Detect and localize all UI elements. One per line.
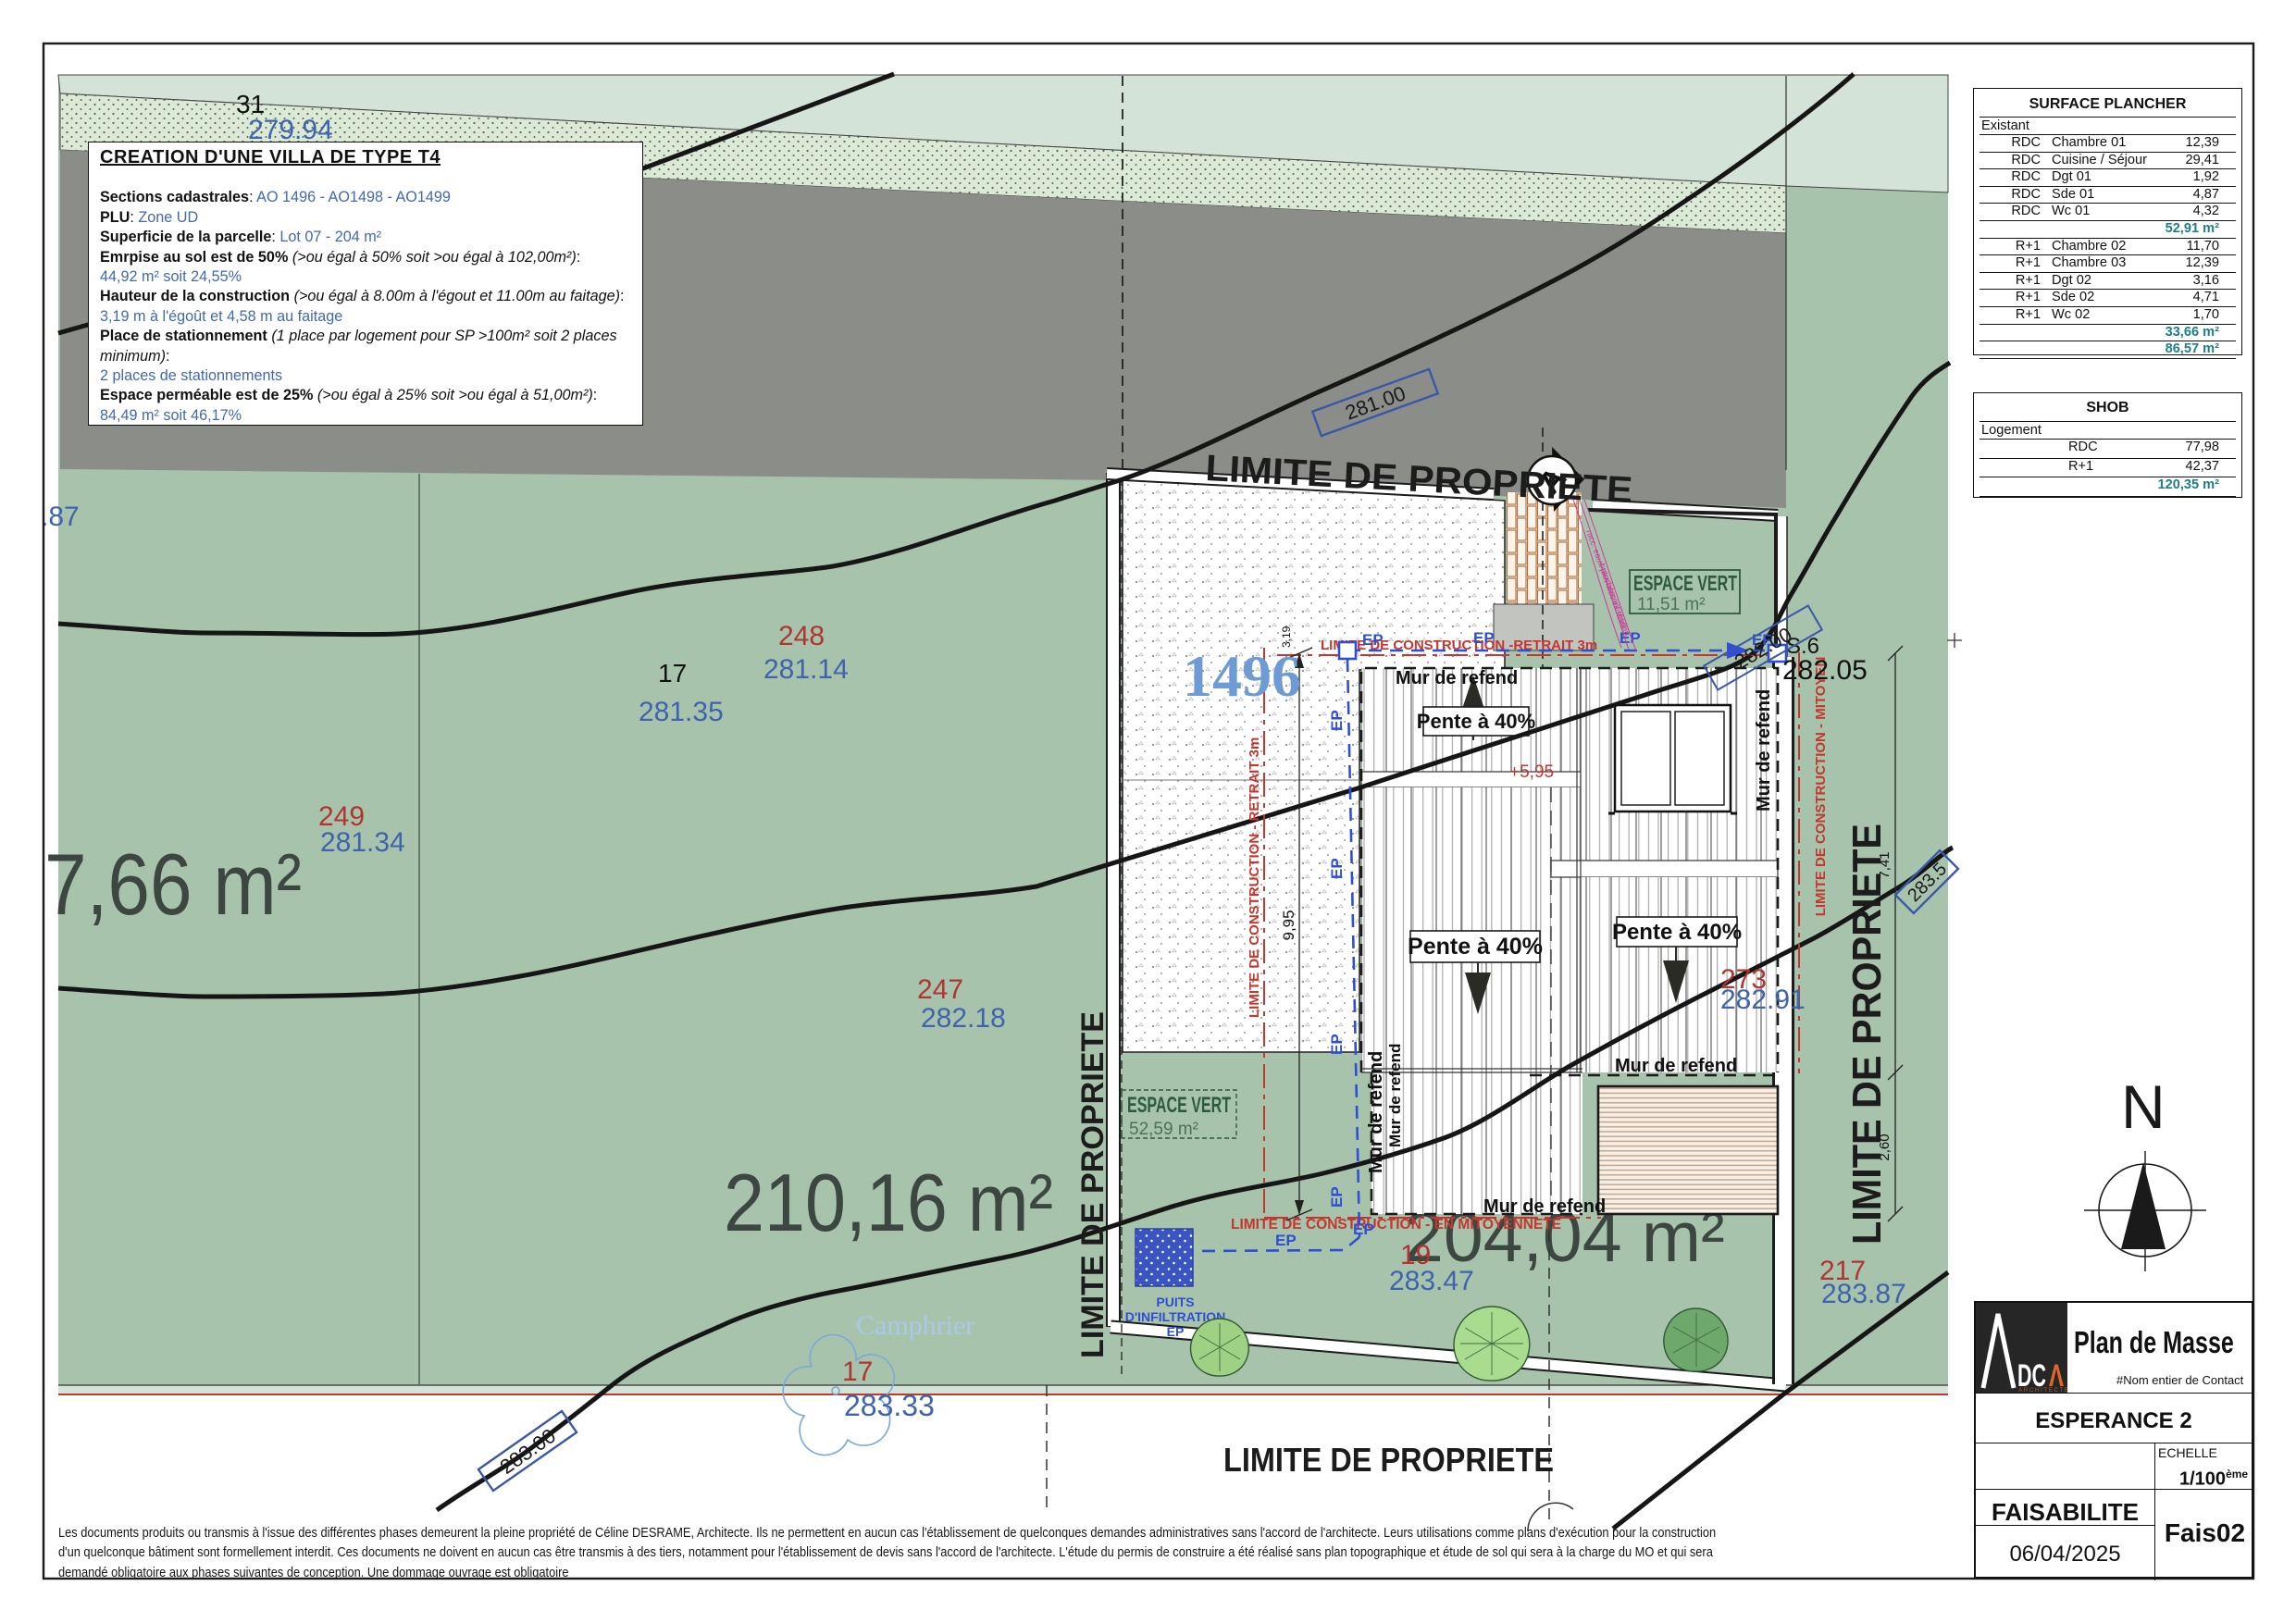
svg-text:N: N <box>2121 1072 2166 1141</box>
svg-text:247: 247 <box>917 974 963 1005</box>
svg-text:282.91: 282.91 <box>1720 985 1806 1015</box>
svg-text:.87: .87 <box>41 502 80 532</box>
svg-text:EP: EP <box>1473 629 1495 647</box>
svg-text:7,66 m²: 7,66 m² <box>44 836 302 933</box>
svg-text:17: 17 <box>658 659 687 688</box>
svg-text:EP: EP <box>1328 710 1346 731</box>
svg-text:282.05: 282.05 <box>1782 655 1868 686</box>
svg-text:ESPACE VERT: ESPACE VERT <box>1127 1093 1231 1118</box>
svg-text:EP: EP <box>1353 1220 1374 1238</box>
svg-text:Mur de refend: Mur de refend <box>1366 1051 1386 1173</box>
svg-text:Pente à 40%: Pente à 40% <box>1408 934 1543 960</box>
svg-text:11,51 m²: 11,51 m² <box>1637 595 1706 614</box>
svg-text:9,95: 9,95 <box>1280 910 1297 940</box>
svg-text:LIMITE DE PROPRIETE: LIMITE DE PROPRIETE <box>1223 1441 1554 1479</box>
svg-text:283.33: 283.33 <box>844 1389 935 1422</box>
svg-text:Mur de refend: Mur de refend <box>1754 689 1774 811</box>
svg-text:52,59 m²: 52,59 m² <box>1129 1120 1198 1139</box>
svg-text:EP: EP <box>1275 1232 1297 1249</box>
svg-text:EP: EP <box>1328 858 1346 879</box>
svg-text:1496: 1496 <box>1183 643 1301 709</box>
svg-text:Pente à 40%: Pente à 40% <box>1612 920 1742 945</box>
svg-text:LIMITE DE PROPRIETE: LIMITE DE PROPRIETE <box>1844 824 1890 1245</box>
svg-text:Mur de refend: Mur de refend <box>1615 1056 1737 1076</box>
svg-text:210,16 m²: 210,16 m² <box>724 1157 1053 1248</box>
svg-text:LIMITE DE PROPRIETE: LIMITE DE PROPRIETE <box>1075 1011 1111 1358</box>
svg-text:Mur de refend: Mur de refend <box>1386 1044 1404 1147</box>
svg-text:283.47: 283.47 <box>1389 1266 1474 1296</box>
svg-text:+5,95: +5,95 <box>1509 762 1554 782</box>
svg-text:EP: EP <box>1167 1324 1185 1339</box>
svg-text:EP: EP <box>1362 631 1384 649</box>
svg-text:281.35: 281.35 <box>639 697 724 727</box>
svg-text:LIMITE DE CONSTRUCTION - MITOY: LIMITE DE CONSTRUCTION - MITOYEN <box>1813 657 1829 917</box>
svg-text:282.18: 282.18 <box>921 1003 1006 1034</box>
svg-text:281.14: 281.14 <box>763 654 849 685</box>
svg-text:283.87: 283.87 <box>1821 1279 1906 1309</box>
svg-text:Mur de refend: Mur de refend <box>1396 668 1518 688</box>
svg-text:LIMITE DE CONSTRUCTION - RETRA: LIMITE DE CONSTRUCTION - RETRAIT 3m <box>1247 737 1262 1018</box>
svg-text:17: 17 <box>842 1357 873 1387</box>
svg-text:281.34: 281.34 <box>320 827 405 858</box>
svg-text:Pente à 40%: Pente à 40% <box>1417 710 1535 733</box>
svg-text:PUITS: PUITS <box>1156 1295 1194 1309</box>
svg-text:LIMITE DE CONSTRUCTION - EN MI: LIMITE DE CONSTRUCTION - EN MITOYENNETE <box>1231 1217 1561 1233</box>
svg-text:ESPACE VERT: ESPACE VERT <box>1633 571 1737 595</box>
svg-text:Mur de refend: Mur de refend <box>1483 1196 1606 1217</box>
svg-text:EP: EP <box>1328 1186 1346 1208</box>
svg-text:248: 248 <box>778 621 825 651</box>
svg-text:Camphrier: Camphrier <box>856 1310 974 1341</box>
svg-text:EP: EP <box>1328 1034 1346 1055</box>
